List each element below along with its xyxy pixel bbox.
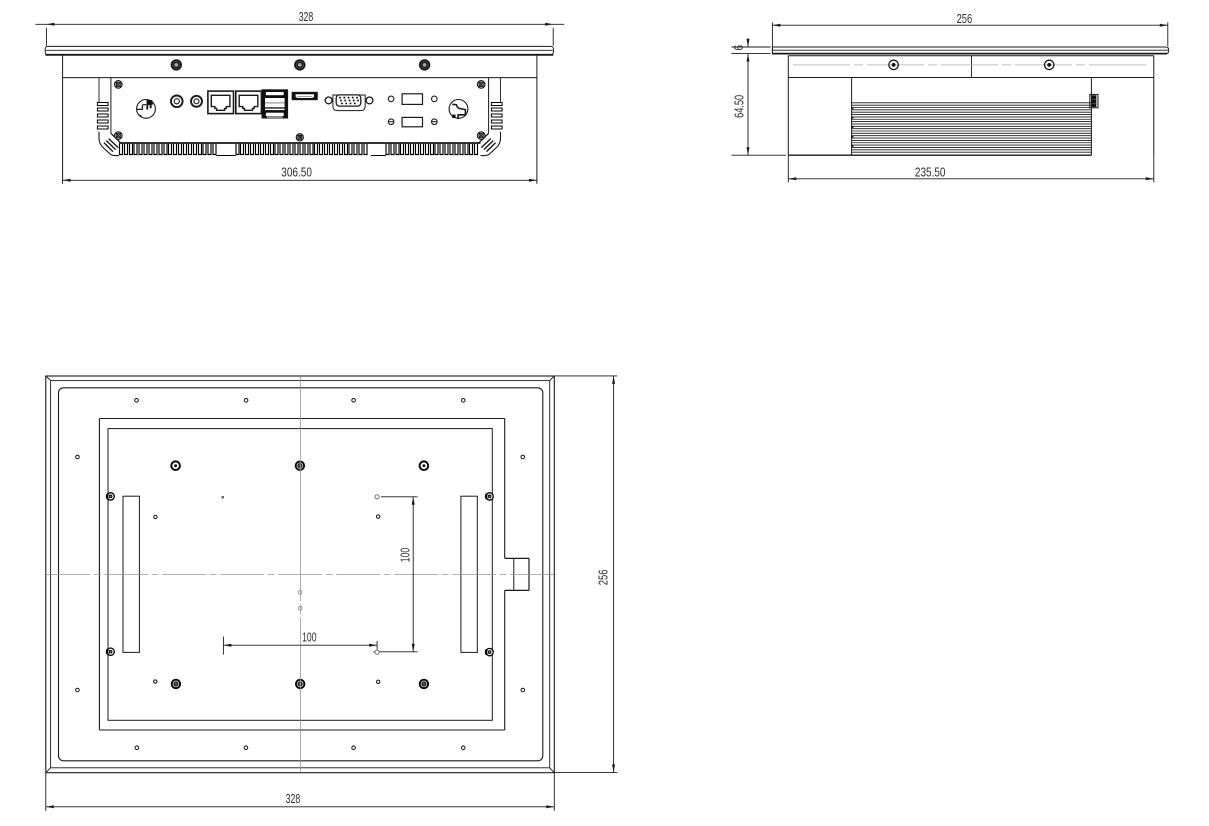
svg-text:6: 6 (731, 45, 746, 51)
svg-text:256: 256 (957, 11, 973, 26)
svg-text:64.50: 64.50 (731, 95, 746, 118)
svg-text:256: 256 (595, 570, 610, 586)
svg-text:235.50: 235.50 (915, 164, 946, 179)
svg-text:328: 328 (286, 791, 301, 806)
svg-text:100: 100 (302, 629, 316, 644)
svg-text:306.50: 306.50 (281, 165, 312, 180)
svg-text:100: 100 (397, 548, 412, 562)
svg-text:328: 328 (299, 9, 314, 24)
